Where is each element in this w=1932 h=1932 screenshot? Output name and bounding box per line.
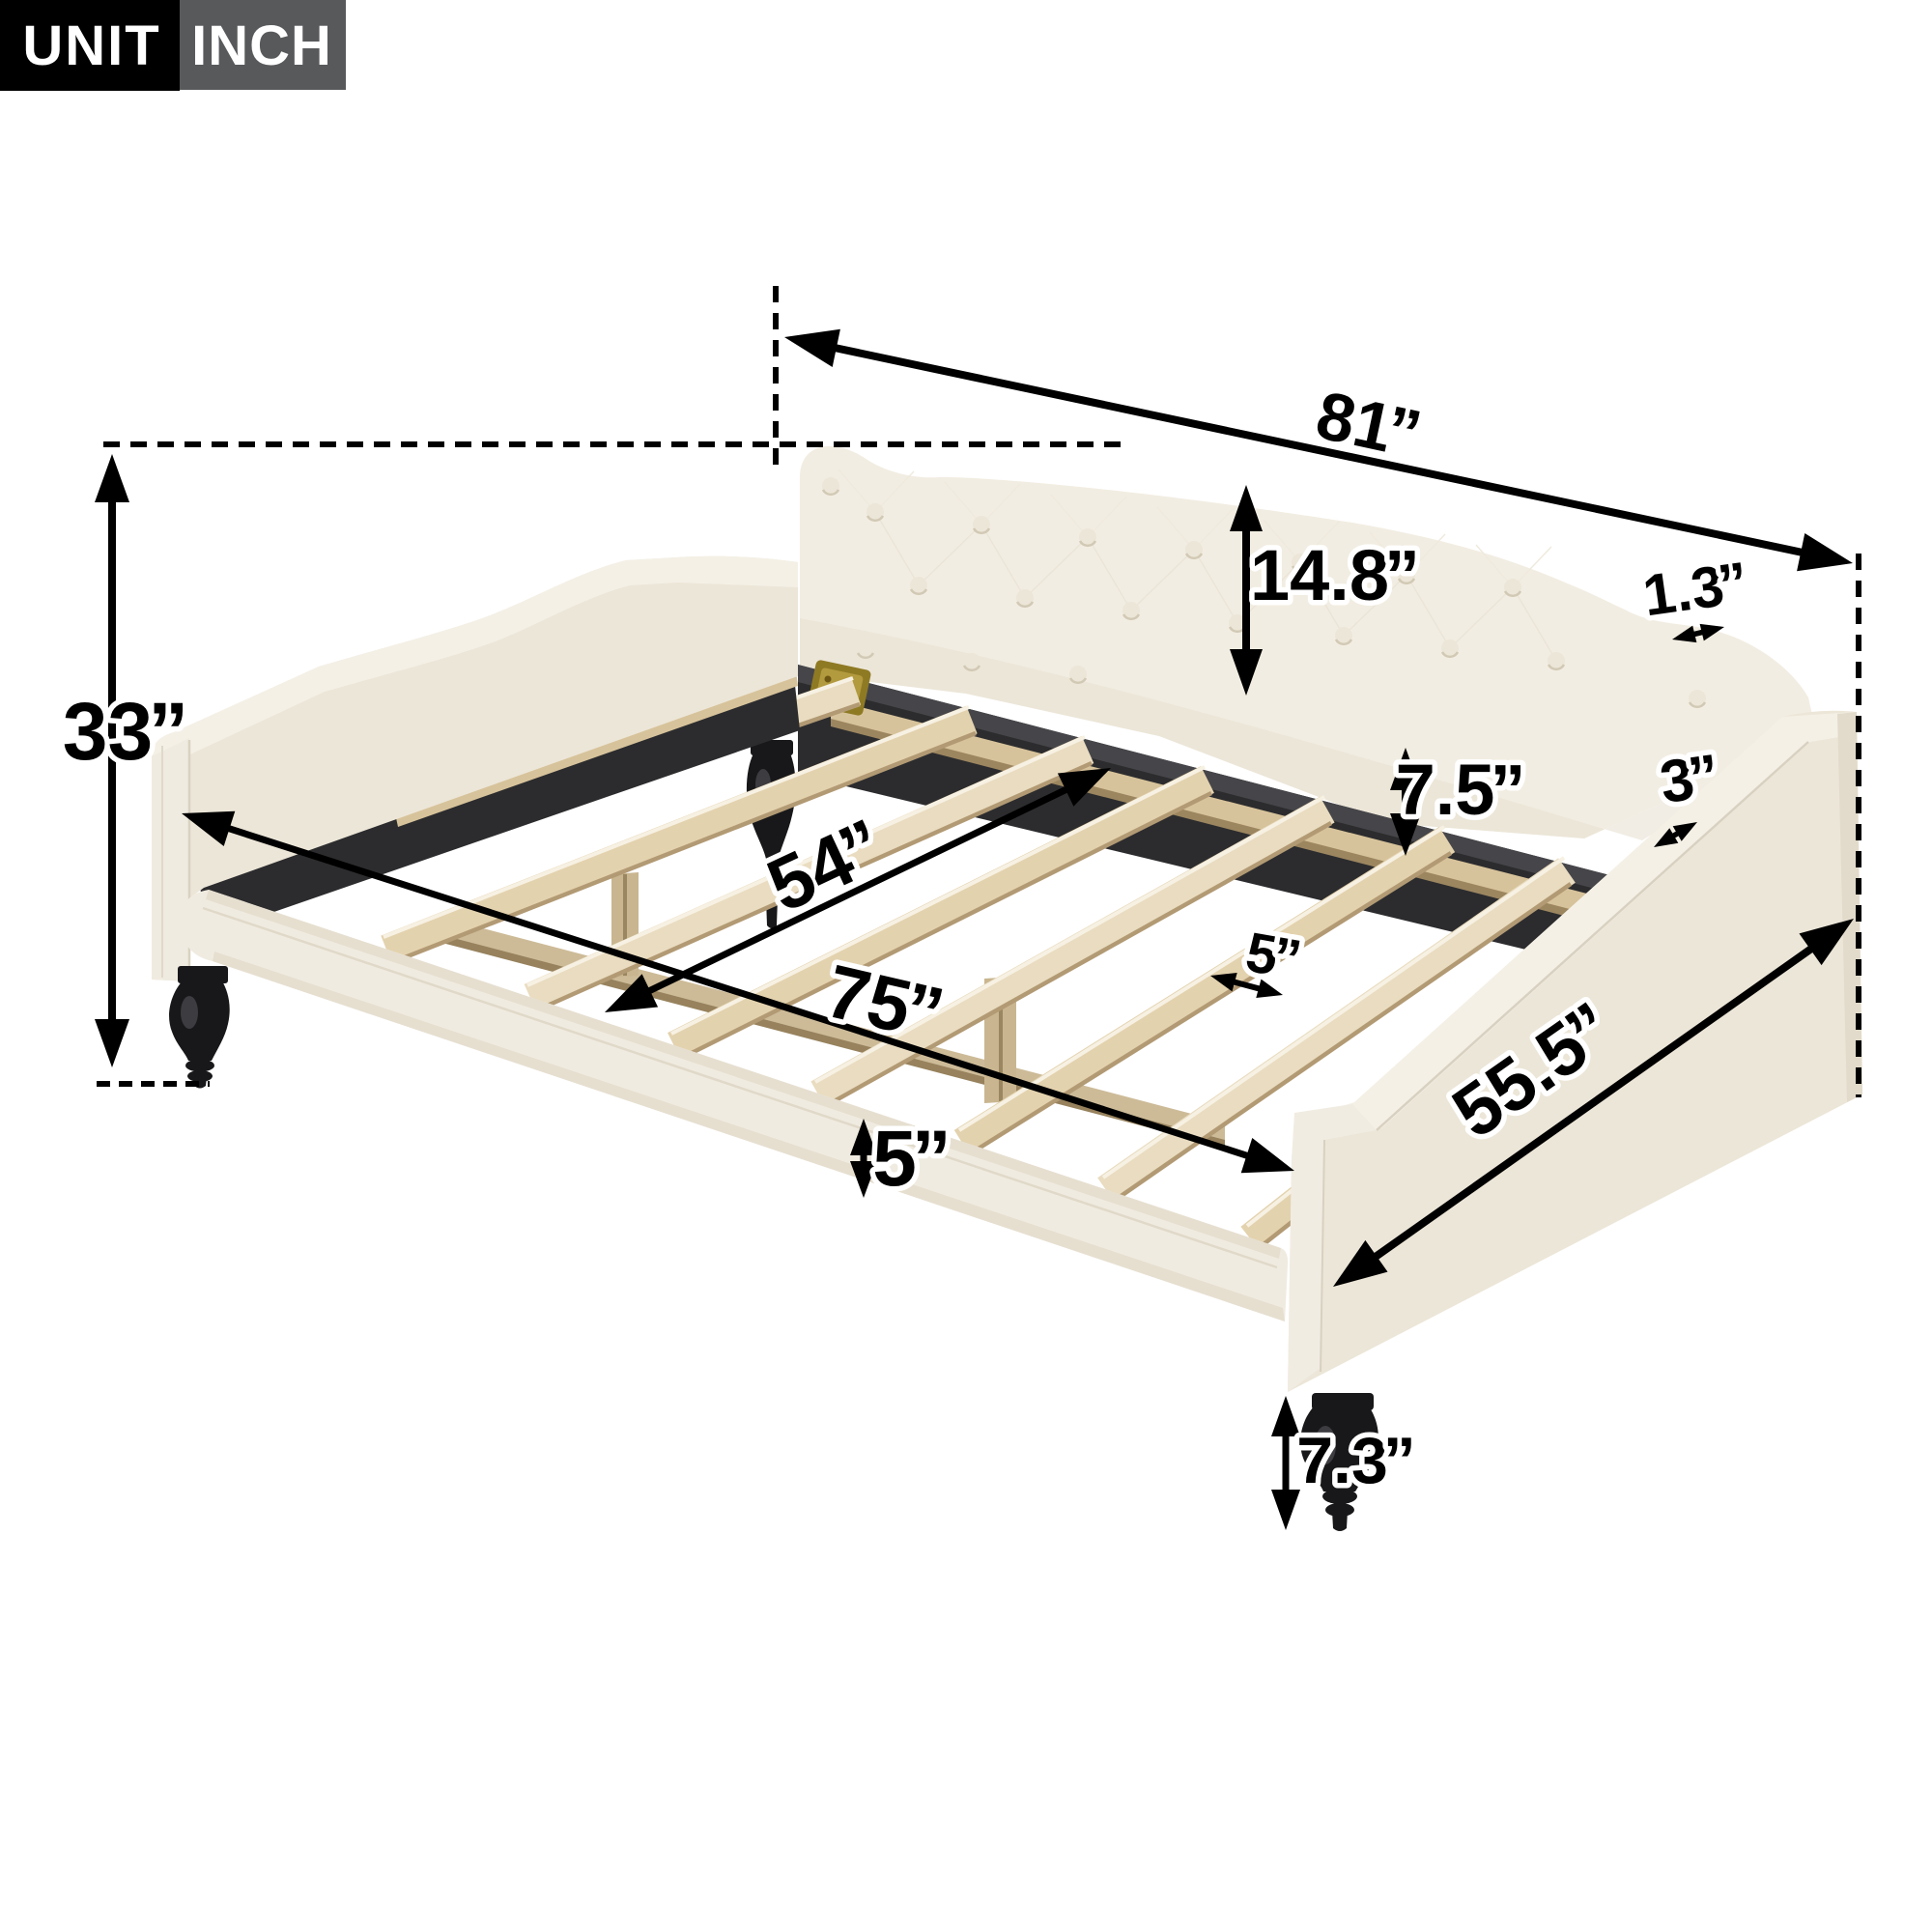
svg-text:7.5”: 7.5” <box>1396 750 1526 830</box>
svg-text:14.8”: 14.8” <box>1250 535 1420 615</box>
svg-text:INCH: INCH <box>191 14 332 77</box>
svg-text:UNIT: UNIT <box>22 14 160 77</box>
svg-text:5”: 5” <box>1241 921 1306 992</box>
svg-text:5”: 5” <box>872 1115 952 1203</box>
svg-text:7.3”: 7.3” <box>1296 1424 1416 1497</box>
svg-text:33”: 33” <box>63 686 188 777</box>
svg-text:3”: 3” <box>1656 742 1722 816</box>
